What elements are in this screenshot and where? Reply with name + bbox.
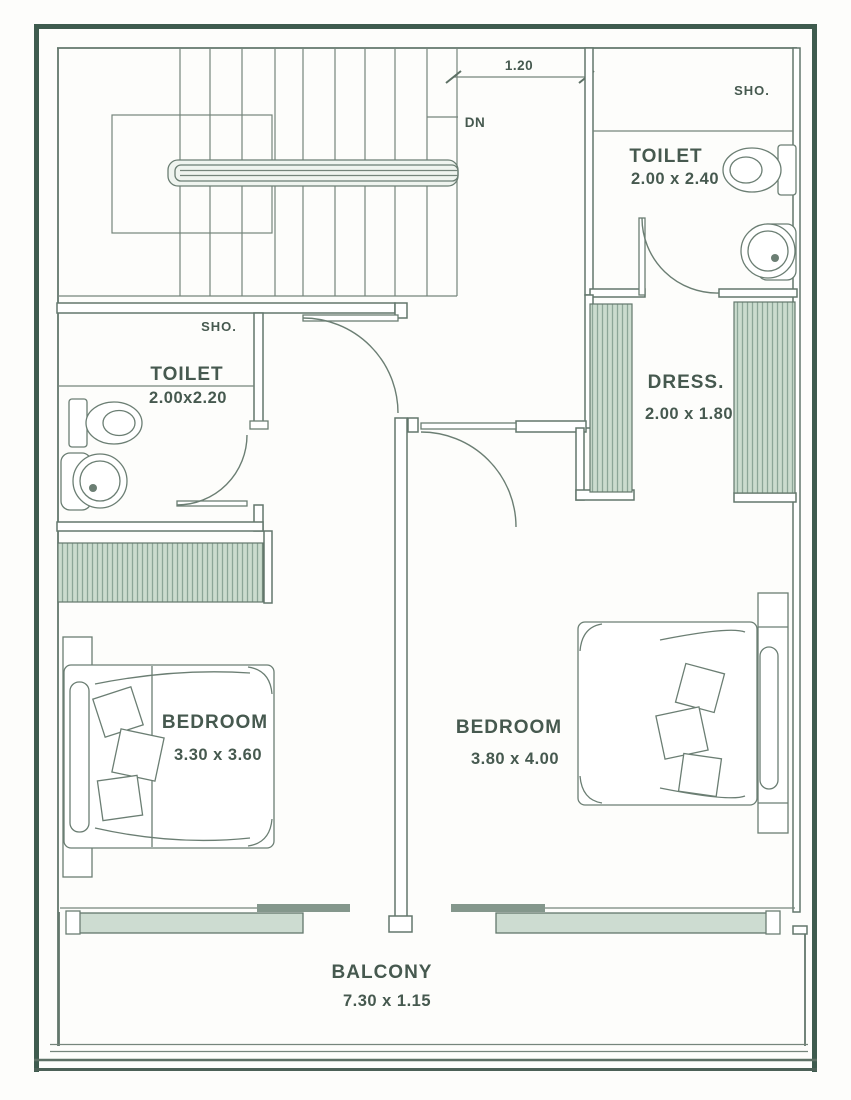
center-wall-cap xyxy=(389,916,412,932)
border-right xyxy=(812,24,817,1072)
dress-dim: 2.00 x 1.80 xyxy=(645,405,733,423)
sink-icon xyxy=(741,224,796,280)
floor-plan-drawing: DN 1.20 SHO. TOILET 2.00 x 2.40 xyxy=(0,0,851,1100)
dress-name: DRESS. xyxy=(648,372,725,393)
floor-plan: DN 1.20 SHO. TOILET 2.00 x 2.40 xyxy=(0,0,851,1100)
center-wall xyxy=(395,418,407,918)
bedroom-left-sliding-door xyxy=(60,904,350,934)
balcony-name: BALCONY xyxy=(332,962,433,983)
stair-handrail xyxy=(168,160,458,186)
landing-dim-label: 1.20 xyxy=(505,58,533,73)
toilet-tr-name: TOILET xyxy=(629,146,702,167)
bedroom-left-wardrobe xyxy=(58,543,263,602)
wardrobe-side-wall xyxy=(264,531,272,603)
toilet-tr-left-wall xyxy=(585,48,593,295)
stair-down-label: DN xyxy=(465,115,486,130)
wc-icon xyxy=(723,145,796,195)
bedroom-left: BEDROOM 3.30 x 3.60 xyxy=(58,543,350,934)
balcony-dim: 7.30 x 1.15 xyxy=(343,992,431,1010)
toilet-l-dim: 2.00x2.20 xyxy=(149,389,227,407)
bedroom-right-door xyxy=(421,423,516,527)
bedroom-left-name: BEDROOM xyxy=(162,712,268,733)
toilet-tr-shower-label: SHO. xyxy=(734,83,770,98)
hall-top-wall xyxy=(57,303,395,313)
bedroom-right-sliding-door xyxy=(451,904,795,934)
bedroom-right-dim: 3.80 x 4.00 xyxy=(471,750,559,768)
toilet-tr-bottom-wall-b xyxy=(719,289,797,297)
toilet-l-name: TOILET xyxy=(150,364,223,385)
toilet-l-right-wall-upper xyxy=(254,313,263,428)
toilet-l-shower-label: SHO. xyxy=(201,319,237,334)
dress-left-wall xyxy=(576,428,584,500)
toilet-tr-door xyxy=(639,218,719,295)
bedroom-left-dim: 3.30 x 3.60 xyxy=(174,746,262,764)
toilet-l-bottom-wall xyxy=(57,522,263,531)
wc-icon xyxy=(69,399,142,447)
balcony-railing xyxy=(34,1045,817,1070)
border-left xyxy=(34,24,39,1072)
sink-drain xyxy=(771,254,779,262)
balcony-right-jog xyxy=(793,926,807,934)
dressing-room: DRESS. 2.00 x 1.80 xyxy=(576,302,796,502)
sink-drain xyxy=(89,484,97,492)
door2-jamb xyxy=(408,418,418,432)
hall-door xyxy=(303,315,398,413)
wardrobe-left xyxy=(590,304,632,492)
sink-icon xyxy=(61,453,127,510)
toilet-tr-bottom-wall-a xyxy=(590,289,645,297)
bedroom-right: BEDROOM 3.80 x 4.00 xyxy=(451,593,795,934)
dress-bottom-wall-right xyxy=(734,493,796,502)
toilet-l-door xyxy=(177,421,268,506)
balcony: BALCONY 7.30 x 1.15 xyxy=(34,912,817,1070)
landing-dimension: 1.20 xyxy=(446,58,594,83)
bedroom-right-name: BEDROOM xyxy=(456,717,562,738)
bed-icon xyxy=(578,593,788,833)
wardrobe-right xyxy=(734,302,795,493)
toilet-tr-dim: 2.00 x 2.40 xyxy=(631,170,719,188)
border-top xyxy=(34,24,817,29)
